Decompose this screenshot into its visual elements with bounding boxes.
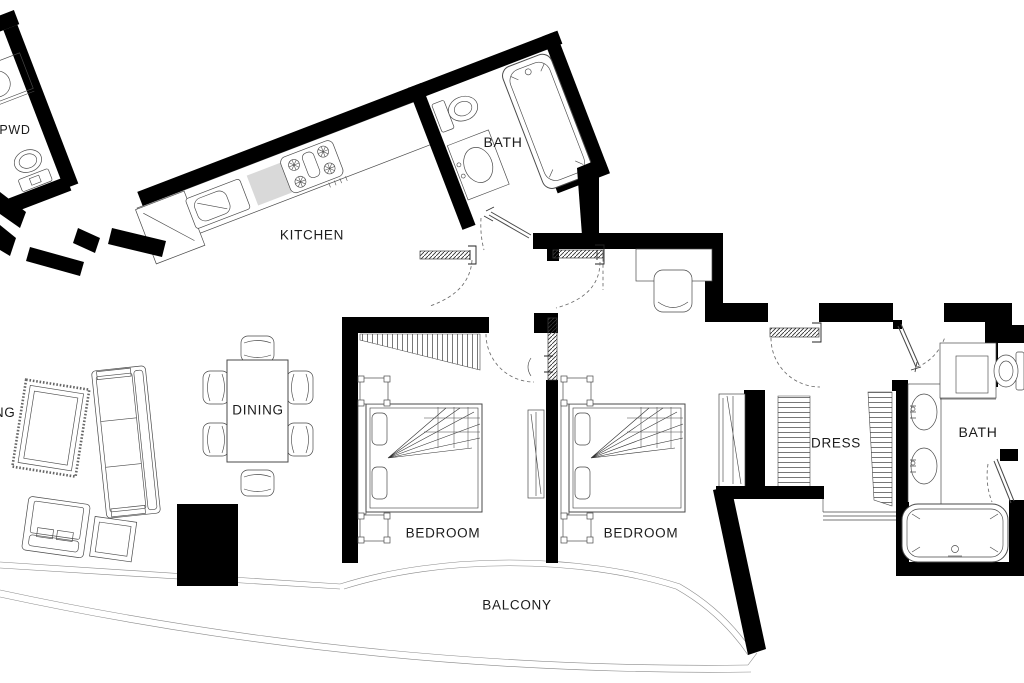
bedroom1-top-wall <box>342 317 489 333</box>
double-vanity-icon <box>908 384 941 512</box>
bedroom1-left-wall <box>342 317 358 563</box>
bath-bottom-wall <box>896 562 1024 576</box>
nightstand-icon <box>561 376 593 406</box>
wardrobe-icon <box>360 334 480 370</box>
bedroom-divider-wall <box>546 380 558 563</box>
bathtub-icon <box>902 504 1008 562</box>
dresser-icon <box>528 410 544 498</box>
desk-icon <box>636 249 712 312</box>
shower-icon <box>940 343 996 399</box>
sofa-icon <box>91 366 160 519</box>
diagonal-exterior-wall <box>713 486 766 655</box>
bath-door <box>893 320 945 372</box>
double-bed-icon <box>358 402 482 514</box>
balcony-railing-icon <box>0 560 757 672</box>
room-label-dress: DRESS <box>811 436 861 451</box>
sliding-door <box>420 246 476 306</box>
pwd-room <box>0 10 82 222</box>
double-bed-icon <box>561 402 685 514</box>
door-swing <box>486 334 534 382</box>
floorplan-drawing <box>0 0 1024 683</box>
floorplan: PWD KITCHEN BATH DINING LIVING BEDROOM B… <box>0 0 1024 683</box>
corridor-top-wall <box>944 303 987 322</box>
toilet-icon <box>432 89 483 132</box>
nightstand-icon <box>561 513 593 543</box>
service-shaft <box>177 504 238 586</box>
bath-door <box>987 449 1018 503</box>
room-label-pwd: PWD <box>0 123 31 137</box>
room-label-bath-master: BATH <box>958 424 997 440</box>
side-table-icon <box>90 516 137 561</box>
sliding-door <box>770 323 821 387</box>
sliding-door <box>553 245 604 308</box>
room-label-balcony: BALCONY <box>482 598 551 613</box>
wardrobe-icon <box>719 394 745 487</box>
room-label-living: LIVING <box>0 405 15 420</box>
hall-top-wall <box>533 233 707 249</box>
room-label-bedroom-1: BEDROOM <box>406 526 481 541</box>
nightstand-icon <box>358 376 390 406</box>
exterior-wall <box>1012 325 1024 343</box>
vanity-wall <box>896 380 908 512</box>
exterior-wall <box>985 303 1012 343</box>
toilet-icon <box>994 352 1024 390</box>
corridor-top-wall <box>705 303 768 322</box>
rug-icon <box>12 380 89 477</box>
wardrobe-icon <box>778 396 810 496</box>
corridor-top-wall <box>819 303 893 322</box>
bath-right-wall <box>1009 500 1024 566</box>
room-label-dining: DINING <box>232 403 283 418</box>
bath-door <box>481 207 531 250</box>
armchair-icon <box>22 496 91 558</box>
room-label-kitchen: KITCHEN <box>280 228 344 243</box>
room-label-bedroom-2: BEDROOM <box>604 526 679 541</box>
bedroom2-right-wall <box>744 390 765 498</box>
room-label-bath-top: BATH <box>483 134 522 150</box>
wardrobe-icon <box>868 392 892 506</box>
nightstand-icon <box>358 513 390 543</box>
